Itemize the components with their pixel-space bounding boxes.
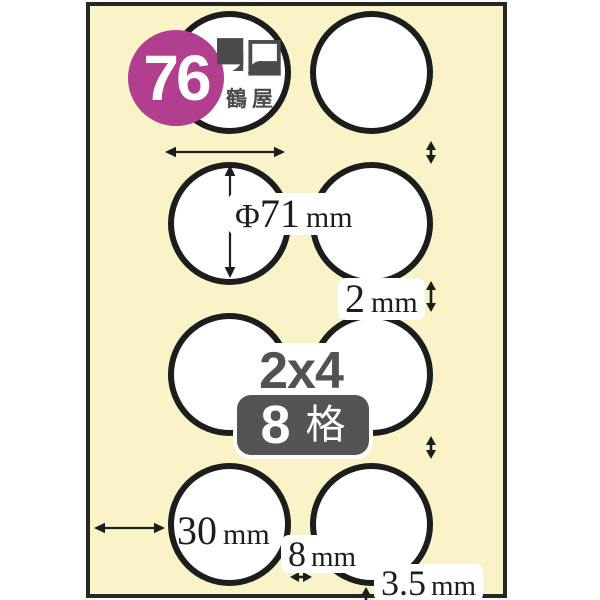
bottom-margin-unit: mm xyxy=(431,572,476,600)
model-number-badge: 76 xyxy=(128,30,224,126)
row-gap-value: 2 xyxy=(345,279,365,319)
row-gap-unit: mm xyxy=(371,288,418,318)
brand-logo: 鶴屋 xyxy=(214,38,290,110)
left-margin-label: 30 mm xyxy=(177,511,270,551)
model-number: 76 xyxy=(143,46,208,110)
cell-count: 8 xyxy=(260,398,290,452)
cell-unit: 格 xyxy=(306,405,346,445)
column-gap-unit: mm xyxy=(311,543,356,572)
grid-size-label: 2x4 xyxy=(247,343,355,399)
row-gap-label: 2 mm xyxy=(338,278,425,320)
diameter-value: 71 xyxy=(260,194,300,234)
cell-count-badge: 8 格 xyxy=(237,395,369,455)
diameter-unit: mm xyxy=(306,203,353,233)
overlapping-squares-icon xyxy=(217,38,287,82)
bottom-margin-label: 3.5 mm xyxy=(374,564,483,600)
left-margin-value: 30 xyxy=(177,511,217,551)
column-gap-value: 8 xyxy=(288,536,306,572)
left-margin-unit: mm xyxy=(223,520,270,550)
bottom-margin-value: 3.5 xyxy=(381,565,426,600)
diameter-label: Φ71 mm xyxy=(228,193,360,235)
label-sheet-spec-image: 76 鶴屋 xyxy=(0,0,600,600)
diameter-prefix: Φ xyxy=(235,200,260,234)
brand-name: 鶴屋 xyxy=(214,89,290,110)
label-circle xyxy=(310,11,433,134)
column-gap-label: 8 mm xyxy=(281,535,363,573)
